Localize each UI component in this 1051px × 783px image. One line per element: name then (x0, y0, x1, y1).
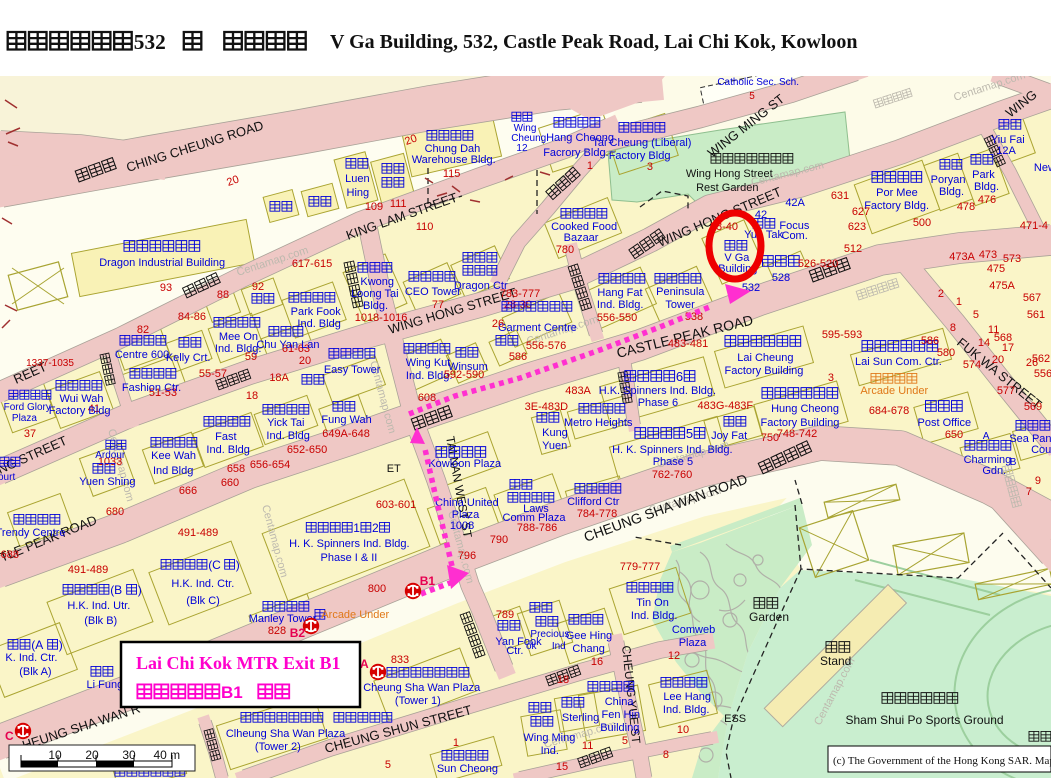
svg-text:573: 573 (1003, 253, 1021, 265)
svg-text:561: 561 (1027, 309, 1045, 321)
svg-text:Bldg.: Bldg. (363, 300, 388, 312)
svg-text:Kung: Kung (542, 427, 568, 439)
svg-text:B1: B1 (221, 683, 243, 702)
svg-text:658: 658 (227, 463, 245, 475)
svg-text:5: 5 (385, 759, 391, 771)
svg-text:528: 528 (772, 272, 790, 284)
svg-text:1: 1 (956, 296, 962, 308)
svg-text:Li Fung: Li Fung (87, 679, 124, 691)
svg-text:Phase I & II: Phase I & II (321, 552, 378, 564)
svg-text:Fung Wah: Fung Wah (321, 414, 371, 426)
svg-text:656-654: 656-654 (250, 459, 290, 471)
svg-text:Warehouse Bldg.: Warehouse Bldg. (412, 154, 496, 166)
svg-text:Hing: Hing (347, 187, 370, 199)
svg-text:1: 1 (587, 160, 593, 172)
svg-text:115: 115 (443, 168, 461, 180)
svg-text:14: 14 (978, 337, 990, 349)
svg-text:Yuen Shing: Yuen Shing (79, 476, 135, 488)
svg-text:Kwong: Kwong (360, 276, 394, 288)
svg-text:Park: Park (972, 169, 995, 181)
svg-text:Lai Chi Kok MTR Exit B1: Lai Chi Kok MTR Exit B1 (136, 653, 341, 673)
svg-text:111: 111 (390, 198, 407, 210)
svg-text:471-4: 471-4 (1020, 220, 1048, 232)
svg-text:Rest Garden: Rest Garden (696, 182, 758, 194)
svg-text:5: 5 (749, 91, 755, 102)
svg-text:Ind. Bldg.: Ind. Bldg. (663, 704, 709, 716)
svg-text:H.K. Ind. Utr.: H.K. Ind. Utr. (67, 600, 130, 612)
svg-text:660: 660 (221, 477, 239, 489)
svg-text:532: 532 (134, 30, 166, 54)
svg-text:H. K. Spinners Ind. Bldg.: H. K. Spinners Ind. Bldg. (289, 538, 409, 550)
svg-text:109: 109 (365, 201, 383, 213)
svg-text:556: 556 (1034, 368, 1051, 380)
svg-text:Ind: Ind (552, 641, 566, 652)
svg-text:Ind Bldg: Ind Bldg (153, 465, 193, 477)
svg-text:Plaza: Plaza (679, 637, 707, 649)
svg-text:1018-1016: 1018-1016 (355, 312, 408, 324)
svg-text:9: 9 (1035, 475, 1041, 487)
svg-text:55-57: 55-57 (199, 368, 227, 380)
svg-text:828: 828 (268, 625, 286, 637)
svg-text:796: 796 (458, 550, 476, 562)
svg-text:Metro Heights: Metro Heights (564, 417, 633, 429)
svg-text:Easy Tower: Easy Tower (324, 364, 381, 376)
svg-text:684-678: 684-678 (869, 405, 909, 417)
svg-text:18A: 18A (269, 372, 289, 384)
svg-text:491-489: 491-489 (178, 527, 218, 539)
svg-text:Com.: Com. (782, 230, 808, 242)
svg-text:Lai Cheung: Lai Cheung (737, 352, 793, 364)
svg-text:748-742: 748-742 (777, 428, 817, 440)
svg-text:8: 8 (950, 322, 956, 334)
svg-text:Poryan: Poryan (931, 174, 966, 186)
svg-text:3: 3 (647, 161, 653, 173)
svg-text:B2: B2 (290, 626, 306, 640)
svg-text:Cour: Cour (1031, 444, 1051, 456)
svg-text:Bldg.: Bldg. (939, 186, 964, 198)
svg-text:Sun Cheong: Sun Cheong (437, 763, 498, 775)
svg-text:(Blk C): (Blk C) (186, 595, 220, 607)
svg-text:(Blk A): (Blk A) (19, 666, 51, 678)
svg-text:ET: ET (387, 463, 401, 475)
svg-text:Ind. Bldg.: Ind. Bldg. (215, 343, 261, 355)
svg-text:Yick Tai: Yick Tai (267, 417, 304, 429)
svg-text:Kelly Crt.: Kelly Crt. (166, 352, 211, 364)
svg-text:Sham Shui Po Sports Ground: Sham Shui Po Sports Ground (846, 713, 1004, 727)
svg-text:H.K. Spinners Ind. Bldg.: H.K. Spinners Ind. Bldg. (599, 385, 716, 397)
svg-text:784-778: 784-778 (577, 508, 617, 520)
svg-text:H.K. Ind. Ctr.: H.K. Ind. Ctr. (171, 578, 234, 590)
svg-text:2: 2 (372, 521, 379, 535)
svg-text:483A: 483A (565, 385, 591, 397)
svg-text:110: 110 (416, 221, 434, 233)
svg-text:475A: 475A (989, 280, 1015, 292)
svg-text:500: 500 (913, 217, 931, 229)
svg-text:Fen Hin: Fen Hin (602, 709, 641, 721)
svg-text:Sterling: Sterling (562, 712, 599, 724)
svg-text:ok: ok (526, 641, 538, 652)
svg-text:800: 800 (368, 583, 386, 595)
svg-text:567: 567 (1023, 292, 1041, 304)
svg-text:20: 20 (85, 748, 99, 762)
svg-text:42A: 42A (785, 197, 805, 209)
svg-text:3E-483D: 3E-483D (525, 401, 568, 413)
svg-text:88: 88 (217, 289, 229, 301)
svg-text:10: 10 (48, 748, 62, 762)
svg-text:Tower: Tower (665, 299, 695, 311)
svg-text:Park Fook: Park Fook (291, 306, 342, 318)
svg-text:617-615: 617-615 (292, 258, 332, 270)
svg-text:586: 586 (509, 351, 527, 363)
svg-text:): ) (138, 583, 142, 597)
svg-text:17: 17 (1002, 342, 1014, 354)
svg-text:1008: 1008 (450, 520, 474, 532)
svg-text:82: 82 (137, 324, 149, 336)
svg-text:Trendy Centre: Trendy Centre (0, 527, 66, 539)
svg-text:Factory Building: Factory Building (725, 365, 804, 377)
svg-text:15: 15 (556, 761, 568, 773)
svg-text:Factory Bldg.: Factory Bldg. (864, 200, 929, 212)
svg-text:12A: 12A (996, 145, 1016, 157)
svg-text:CEO Tower: CEO Tower (405, 286, 461, 298)
svg-text:(Blk B): (Blk B) (84, 615, 117, 627)
svg-text:Phase 5: Phase 5 (653, 456, 693, 468)
svg-text:Chu Yan Lan: Chu Yan Lan (256, 339, 319, 351)
svg-text:592-590: 592-590 (444, 369, 484, 381)
svg-text:Ind. Bldg.: Ind. Bldg. (631, 610, 677, 622)
svg-text:562: 562 (1032, 353, 1050, 365)
svg-text:China United: China United (435, 497, 499, 509)
svg-text:790: 790 (490, 534, 508, 546)
svg-text:Ind. Bldg.: Ind. Bldg. (597, 299, 643, 311)
svg-text:Wing Ming: Wing Ming (523, 732, 575, 744)
svg-text:Por Mee: Por Mee (876, 187, 918, 199)
svg-text:Factory Bldg: Factory Bldg (49, 405, 111, 417)
svg-text:(c) The Government of the Hong: (c) The Government of the Hong Kong SAR.… (833, 755, 1051, 767)
svg-text:Wui Wah: Wui Wah (60, 393, 104, 405)
svg-text:Building: Building (600, 722, 639, 734)
svg-text:483-481: 483-481 (668, 338, 708, 350)
svg-text:Hung Cheong: Hung Cheong (771, 403, 839, 415)
svg-text:Wing Hong Street: Wing Hong Street (686, 168, 773, 180)
svg-text:C: C (5, 729, 14, 743)
svg-text:Stand: Stand (820, 654, 851, 668)
svg-text:Ind. Bldg: Ind. Bldg (206, 444, 249, 456)
svg-text:1337-1035: 1337-1035 (26, 358, 74, 369)
svg-text:20: 20 (992, 354, 1004, 366)
svg-text:18: 18 (557, 674, 569, 686)
svg-text:18: 18 (246, 390, 258, 402)
svg-text:8: 8 (663, 749, 669, 761)
svg-text:788-786: 788-786 (517, 522, 557, 534)
svg-text:A: A (360, 657, 369, 671)
svg-text:): ) (236, 558, 240, 572)
svg-text:93: 93 (160, 282, 172, 294)
svg-text:40 m: 40 m (154, 748, 181, 762)
svg-text:Ctr.: Ctr. (506, 645, 523, 657)
svg-text:Bldg.: Bldg. (974, 181, 999, 193)
svg-text:37: 37 (24, 428, 36, 440)
svg-text:10: 10 (677, 724, 689, 736)
svg-text:Hang Fat: Hang Fat (597, 287, 642, 299)
svg-text:(Tower 1): (Tower 1) (395, 695, 441, 707)
svg-text:Chang: Chang (572, 643, 604, 655)
svg-text:649A-648: 649A-648 (322, 428, 370, 440)
svg-text:A: A (983, 431, 990, 442)
svg-text:New: New (1034, 162, 1051, 174)
svg-text:Clifford Ctr: Clifford Ctr (567, 496, 620, 508)
svg-text:Loong Tai: Loong Tai (351, 288, 399, 300)
svg-text:473: 473 (979, 249, 997, 261)
svg-text:Precious: Precious (530, 629, 569, 640)
svg-text:652-650: 652-650 (287, 444, 327, 456)
svg-text:476: 476 (978, 194, 996, 206)
svg-text:580: 580 (937, 347, 955, 359)
svg-text:-688: -688 (0, 549, 19, 561)
svg-text:Fashion Ctr.: Fashion Ctr. (122, 382, 181, 394)
svg-text:Yuen: Yuen (542, 440, 567, 452)
svg-text:11: 11 (988, 324, 999, 336)
svg-text:569: 569 (1024, 401, 1042, 413)
svg-text:5: 5 (686, 426, 693, 441)
svg-text:Centre 600: Centre 600 (115, 349, 169, 361)
svg-text:577: 577 (997, 385, 1015, 397)
svg-text:Kee Wah: Kee Wah (151, 450, 196, 462)
svg-text:526-520: 526-520 (798, 258, 838, 270)
svg-text:Garden: Garden (749, 610, 789, 624)
svg-text:Ardour: Ardour (95, 450, 126, 461)
svg-text:Wing Kut: Wing Kut (406, 357, 451, 369)
svg-text:Gdn.: Gdn. (982, 465, 1006, 477)
svg-text:): ) (59, 638, 63, 652)
svg-text:(A: (A (31, 638, 43, 652)
svg-text:1: 1 (453, 737, 459, 749)
svg-text:ourt: ourt (0, 472, 15, 483)
svg-text:750: 750 (761, 432, 779, 444)
svg-text:473A: 473A (949, 251, 975, 263)
svg-text:Ind. Bldg: Ind. Bldg (297, 318, 340, 330)
svg-text:631: 631 (831, 190, 849, 202)
svg-text:556-576: 556-576 (526, 340, 566, 352)
svg-text:ESS: ESS (724, 713, 746, 725)
svg-text:12: 12 (668, 650, 680, 662)
svg-text:11: 11 (582, 740, 593, 752)
svg-text:478: 478 (957, 201, 975, 213)
svg-text:512: 512 (844, 243, 862, 255)
svg-text:603-601: 603-601 (376, 499, 416, 511)
svg-text:3: 3 (828, 372, 834, 384)
svg-text:Cheung Sha Wan Plaza: Cheung Sha Wan Plaza (363, 682, 481, 694)
svg-text:680: 680 (106, 506, 124, 518)
svg-text:833: 833 (391, 654, 409, 666)
svg-text:China: China (605, 696, 635, 708)
svg-text:595-593: 595-593 (822, 329, 862, 341)
svg-text:586: 586 (921, 335, 939, 347)
svg-text:20: 20 (299, 355, 311, 367)
svg-text:5: 5 (973, 309, 979, 321)
svg-text:762-760: 762-760 (652, 469, 692, 481)
svg-text:Ind.: Ind. (541, 745, 559, 757)
svg-text:1: 1 (353, 521, 360, 535)
svg-text:B: B (1010, 457, 1017, 468)
svg-text:12: 12 (516, 143, 528, 154)
svg-text:(B: (B (110, 583, 122, 597)
svg-text:2: 2 (938, 288, 944, 300)
svg-text:77: 77 (432, 299, 444, 311)
svg-text:Lai Sun Com. Ctr.: Lai Sun Com. Ctr. (855, 356, 942, 368)
svg-text:84-86: 84-86 (178, 311, 206, 323)
svg-text:7: 7 (1026, 486, 1032, 498)
svg-text:B1: B1 (420, 574, 436, 588)
svg-text:Lee Hang: Lee Hang (663, 691, 711, 703)
svg-text:Dragon Industrial Building: Dragon Industrial Building (99, 257, 225, 269)
svg-text:K. Ind. Ctr.: K. Ind. Ctr. (5, 652, 57, 664)
svg-text:608: 608 (418, 392, 436, 404)
svg-text:H. K. Spinners Ind. Bldg.: H. K. Spinners Ind. Bldg. (612, 444, 732, 456)
svg-text:Bazaar: Bazaar (564, 232, 599, 244)
svg-text:Arcade Under: Arcade Under (860, 385, 928, 397)
svg-text:Ford Glory: Ford Glory (4, 402, 51, 413)
svg-text:Post Office: Post Office (918, 417, 972, 429)
svg-text:627: 627 (852, 206, 870, 218)
svg-text:483G-483F: 483G-483F (698, 400, 754, 412)
svg-text:623: 623 (848, 221, 866, 233)
svg-text:Tai Cheung (Liberal): Tai Cheung (Liberal) (592, 137, 691, 149)
svg-text:(Tower 2): (Tower 2) (255, 741, 301, 753)
svg-text:Garment Centre: Garment Centre (498, 322, 577, 334)
svg-text:6: 6 (676, 369, 683, 384)
svg-text:(C: (C (208, 558, 221, 572)
svg-text:Mee On: Mee On (219, 331, 258, 343)
svg-text:491-489: 491-489 (68, 564, 108, 576)
svg-text:Fast: Fast (215, 431, 236, 443)
svg-text:Ind. Bldg: Ind. Bldg (266, 430, 309, 442)
svg-text:Tin On: Tin On (636, 597, 669, 609)
svg-text:Joy Fat: Joy Fat (711, 430, 747, 442)
svg-text:Kowloon Plaza: Kowloon Plaza (428, 458, 502, 470)
svg-text:556-550: 556-550 (597, 312, 637, 324)
svg-text:Gee Hing: Gee Hing (566, 630, 612, 642)
svg-text:Phase 6: Phase 6 (638, 397, 678, 409)
svg-text:Catholic Sec. Sch.: Catholic Sec. Sch. (717, 77, 799, 88)
svg-text:789: 789 (496, 609, 514, 621)
svg-text:16: 16 (591, 656, 603, 668)
svg-text:V Ga Building, 532, Castle Pea: V Ga Building, 532, Castle Peak Road, La… (330, 31, 858, 53)
svg-text:92: 92 (252, 281, 264, 293)
svg-text:666: 666 (179, 485, 197, 497)
svg-text:650: 650 (945, 429, 963, 441)
svg-text:Peninsula: Peninsula (656, 286, 705, 298)
svg-text:Comweb: Comweb (672, 624, 715, 636)
svg-text:Luen: Luen (345, 173, 369, 185)
svg-text:780: 780 (556, 244, 574, 256)
svg-text:779-777: 779-777 (620, 561, 660, 573)
svg-text:Factory Bldg: Factory Bldg (609, 150, 671, 162)
svg-text:Arcade Under: Arcade Under (321, 609, 389, 621)
svg-text:574: 574 (963, 359, 981, 371)
svg-text:5: 5 (622, 735, 628, 747)
svg-text:Clheung Sha Wan Plaza: Clheung Sha Wan Plaza (226, 728, 346, 740)
svg-text:26: 26 (492, 318, 504, 330)
svg-text:Plaza: Plaza (12, 413, 37, 424)
